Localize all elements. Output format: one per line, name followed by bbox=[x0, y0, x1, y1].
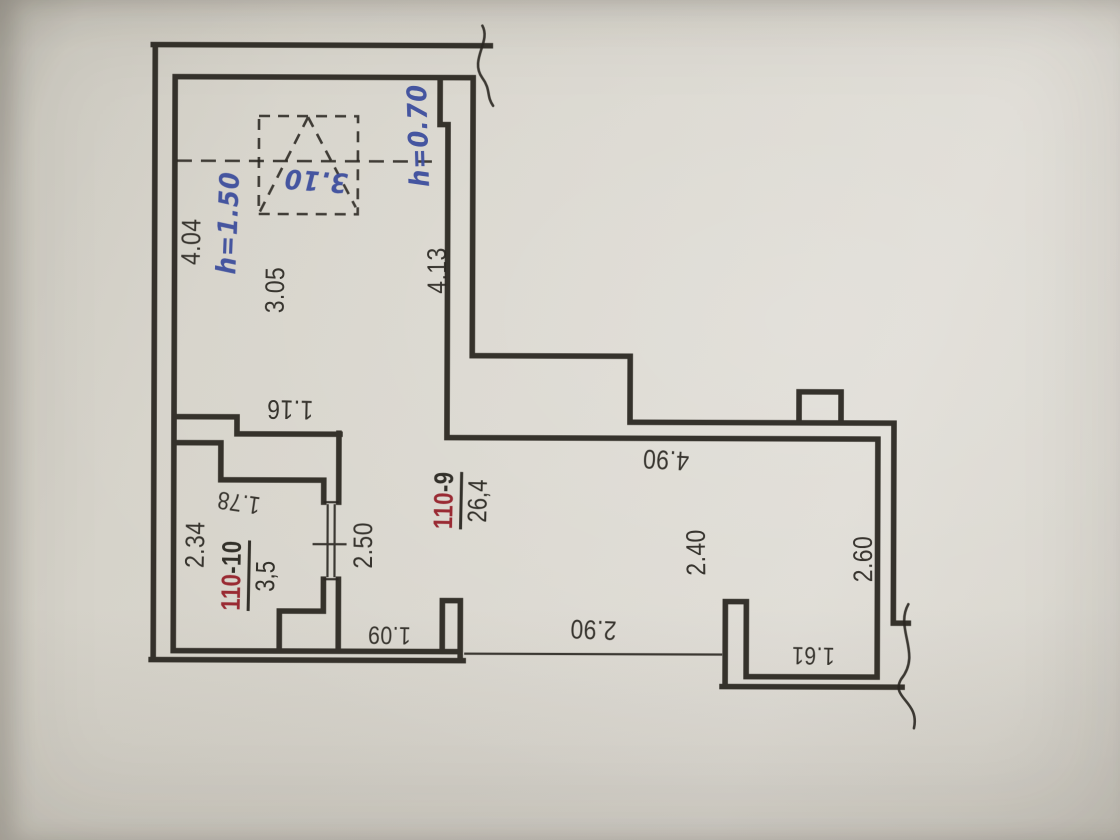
dim-ledge-width: 1.16 bbox=[267, 393, 314, 425]
floor-plan: 4.04 h=1.50 3.05 3.10 h=0.70 4.13 1.16 2… bbox=[0, 0, 1120, 840]
photographed-floor-plan: 4.04 h=1.50 3.05 3.10 h=0.70 4.13 1.16 2… bbox=[0, 0, 1120, 840]
room-label-110-9: 110-9 26,4 bbox=[430, 471, 493, 530]
dim-right-room-width: 1.61 bbox=[791, 640, 835, 670]
room-area: 26,4 bbox=[459, 472, 494, 530]
handwritten-ceiling-height-right: h=0.70 bbox=[402, 84, 436, 188]
handwritten-ceiling-height-left: h=1.50 bbox=[211, 171, 246, 275]
dim-hall-height: 2.40 bbox=[681, 529, 713, 576]
dim-right-room-height: 2.60 bbox=[848, 536, 879, 583]
dim-top-room-width: 3.05 bbox=[260, 267, 292, 314]
dim-small-room-height: 2.34 bbox=[180, 521, 212, 568]
dim-top-room-right-height: 4.13 bbox=[422, 247, 453, 294]
room-number: 110-9 bbox=[430, 471, 459, 529]
dim-opening-width: 2.90 bbox=[570, 613, 618, 646]
room-number: 110-10 bbox=[218, 540, 247, 611]
room-area: 3,5 bbox=[246, 541, 281, 612]
dim-doorway-width: 1.09 bbox=[367, 619, 411, 649]
dimension-labels: 4.04 h=1.50 3.05 3.10 h=0.70 4.13 1.16 2… bbox=[0, 0, 1120, 840]
handwritten-skylight-size: 3.10 bbox=[283, 162, 349, 198]
room-label-110-10: 110-10 3,5 bbox=[218, 540, 282, 611]
dim-small-room-width: 1.78 bbox=[215, 484, 262, 519]
dim-hall-width: 4.90 bbox=[642, 443, 690, 477]
dim-passage-height: 2.50 bbox=[348, 522, 379, 568]
dim-top-room-height: 4.04 bbox=[176, 218, 208, 265]
